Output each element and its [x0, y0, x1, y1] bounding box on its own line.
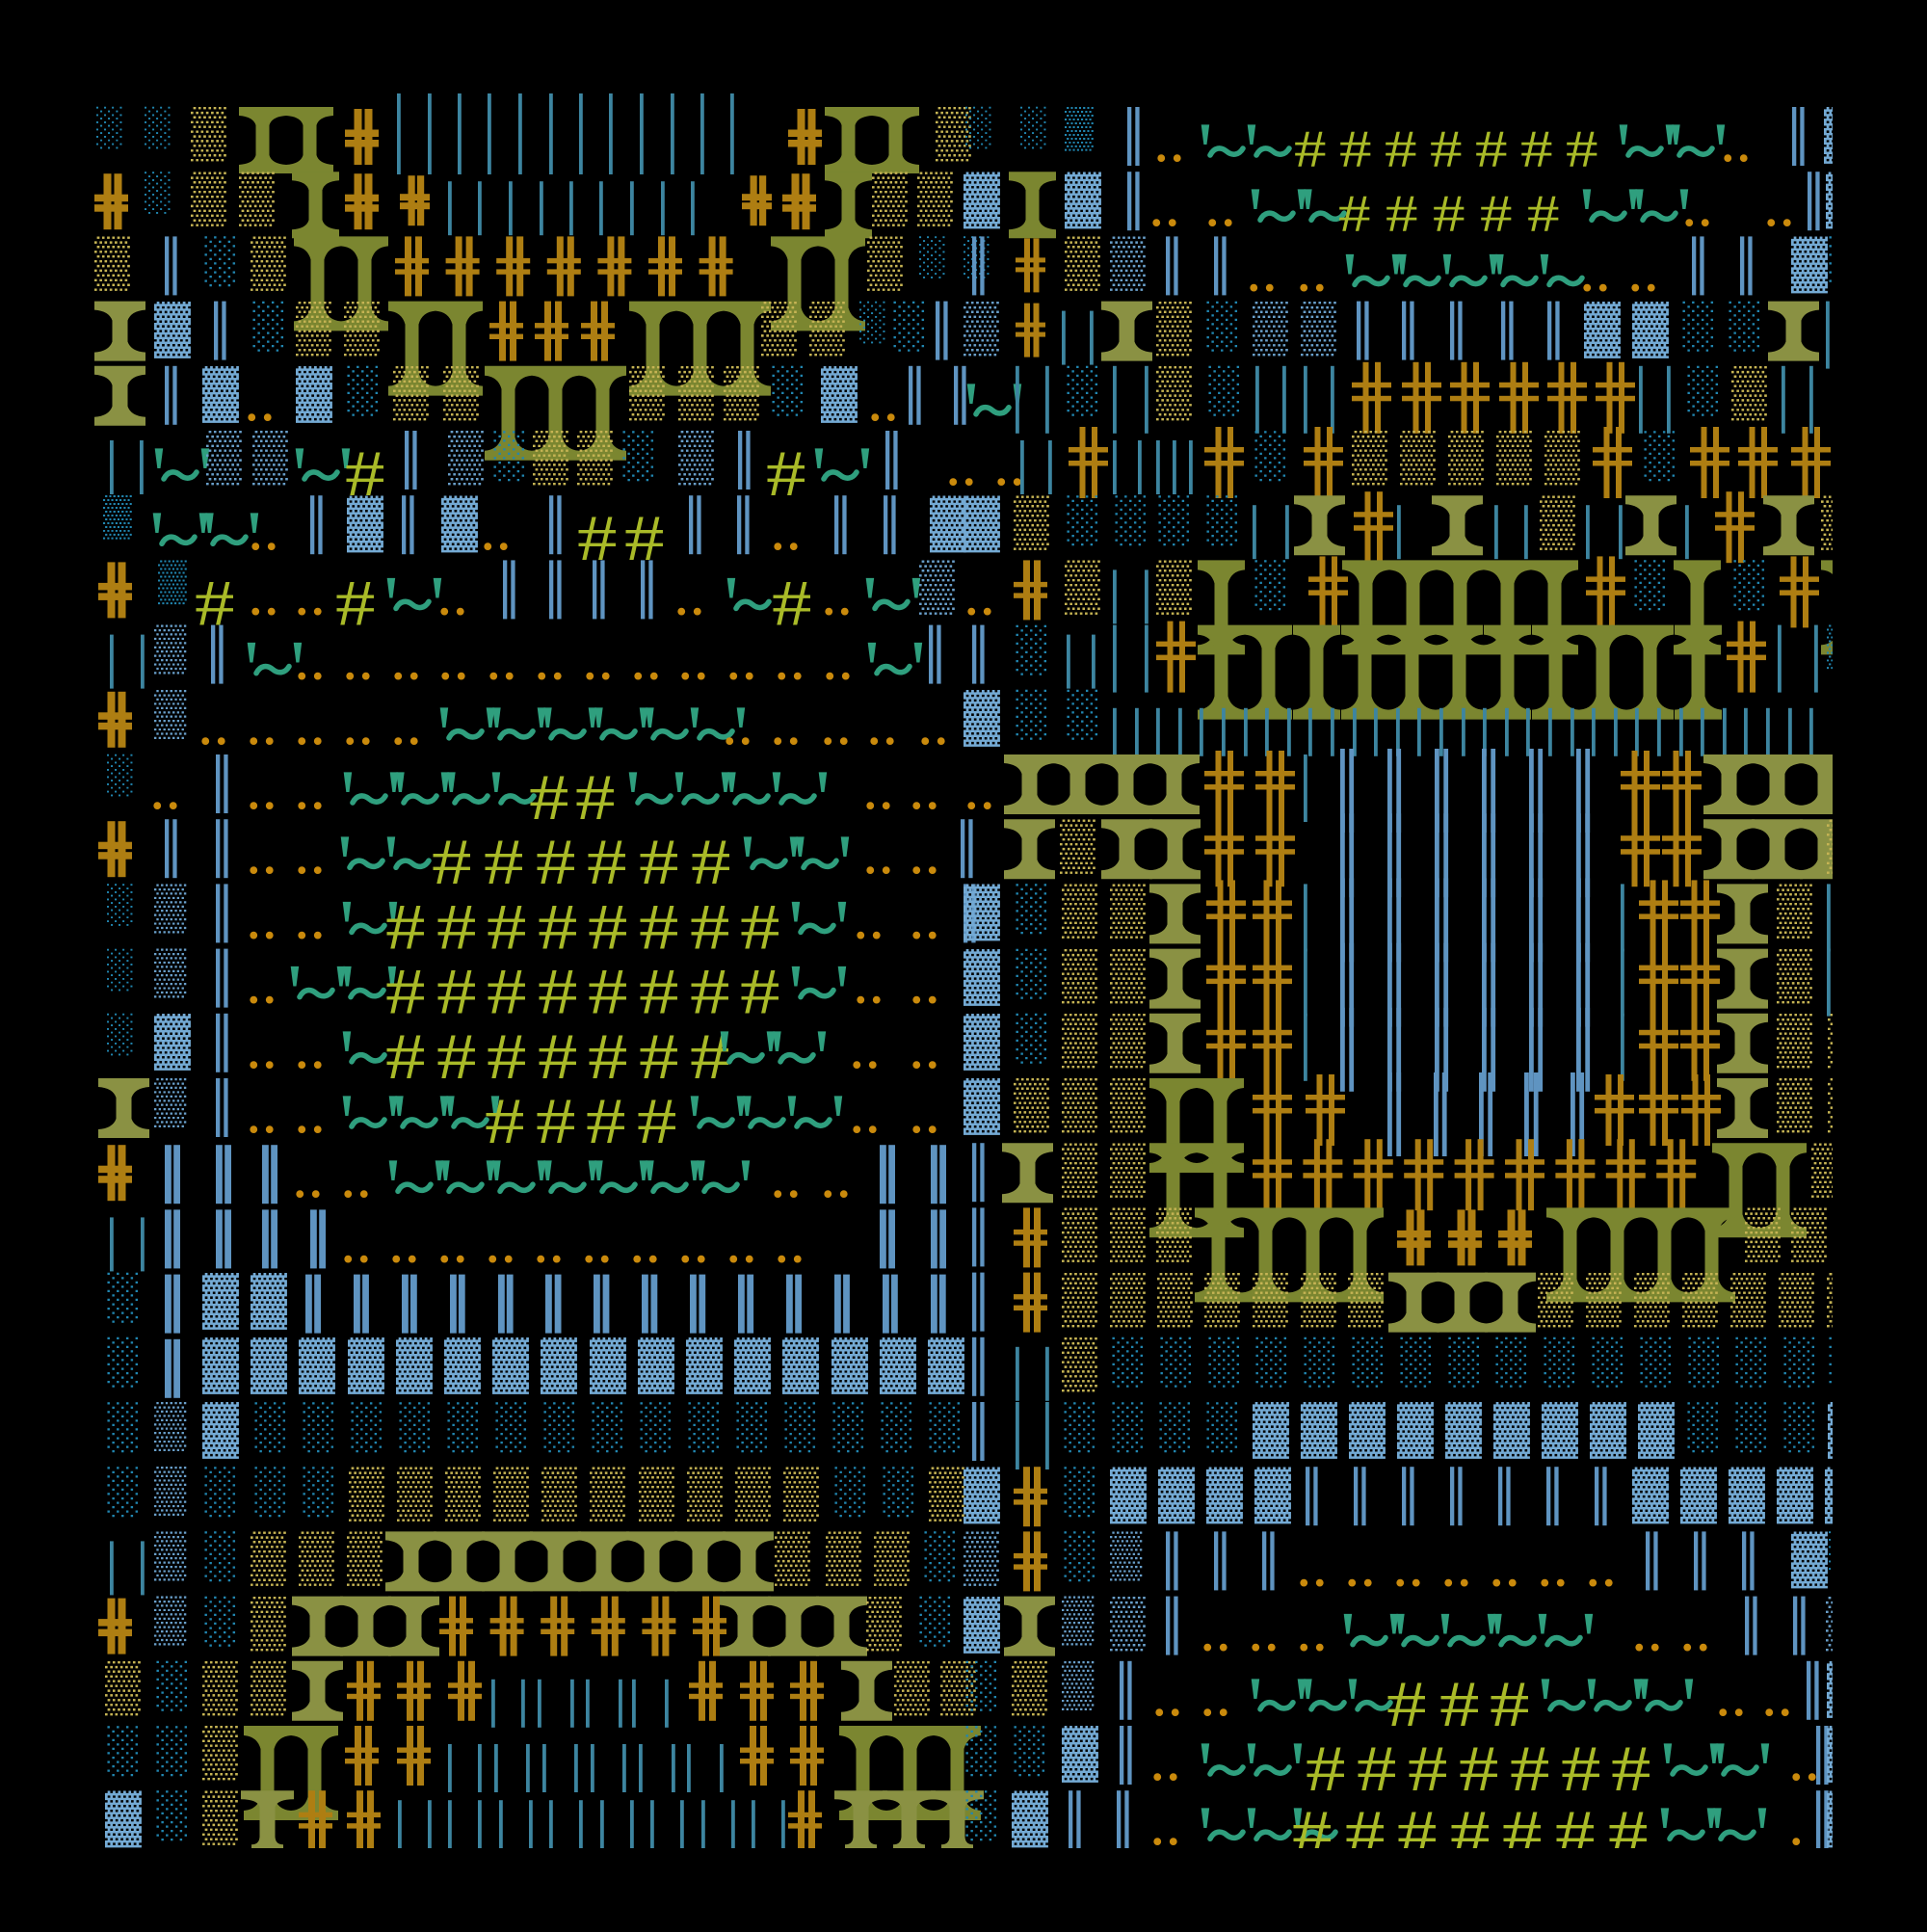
svg-text:▒: ▒ — [154, 1465, 187, 1516]
svg-text:..: .. — [726, 623, 757, 694]
svg-text:▓: ▓ — [202, 1271, 239, 1330]
svg-text:..: .. — [480, 493, 512, 564]
svg-text:#: # — [1510, 1733, 1549, 1805]
svg-text:░: ░ — [154, 1724, 188, 1777]
svg-text:..: .. — [533, 1205, 565, 1276]
svg-text:..: .. — [246, 688, 277, 758]
svg-text:..: .. — [1761, 1659, 1793, 1730]
svg-text:▒: ▒ — [1730, 1271, 1766, 1328]
svg-text:▓: ▓ — [963, 170, 1000, 228]
svg-text:▒: ▒ — [1110, 1595, 1146, 1652]
svg-text:▒: ▒ — [202, 1724, 238, 1781]
svg-text:▒: ▒ — [206, 429, 242, 486]
svg-text:..: .. — [1246, 234, 1278, 304]
svg-text:▒: ▒ — [1586, 1271, 1622, 1328]
svg-text:▒: ▒ — [344, 300, 380, 357]
svg-text:..: .. — [581, 1205, 613, 1276]
svg-text:▓: ▓ — [299, 1336, 335, 1394]
svg-text:▓: ▓ — [444, 1336, 481, 1394]
svg-text:░: ░ — [1110, 1400, 1144, 1453]
svg-text:▒: ▒ — [349, 1465, 384, 1522]
svg-text:..: .. — [909, 947, 940, 1018]
svg-text:#: # — [639, 956, 678, 1028]
svg-text:░: ░ — [397, 1400, 431, 1453]
svg-text:░: ░ — [491, 429, 525, 482]
svg-text:░: ░ — [105, 946, 133, 992]
svg-text:▒: ▒ — [1065, 559, 1100, 616]
svg-text:░: ░ — [1014, 622, 1047, 675]
svg-text:▓: ▓ — [963, 1012, 1000, 1071]
svg-text:..: .. — [246, 817, 277, 887]
svg-text:▒: ▒ — [1062, 883, 1097, 940]
svg-text:▒: ▒ — [894, 1659, 930, 1716]
svg-text:▒: ▒ — [154, 1076, 187, 1127]
svg-text:▒: ▒ — [1745, 1206, 1781, 1263]
svg-text:..: .. — [853, 947, 884, 1018]
svg-text:▓: ▓ — [1158, 1465, 1195, 1523]
svg-text:░: ░ — [345, 364, 379, 417]
svg-text:░: ░ — [1727, 299, 1760, 352]
svg-text:..: .. — [853, 882, 884, 952]
svg-text:#: # — [538, 1020, 577, 1093]
svg-text:▓: ▓ — [590, 1336, 626, 1394]
svg-text:#: # — [1520, 120, 1553, 179]
svg-text:░: ░ — [105, 1724, 139, 1777]
svg-text:░: ░ — [1206, 1336, 1240, 1389]
svg-text:..: .. — [294, 1076, 326, 1147]
svg-text:▒: ▒ — [1014, 493, 1049, 550]
svg-text:..: .. — [582, 623, 614, 694]
svg-text:▒: ▒ — [154, 947, 187, 998]
svg-text:░: ░ — [917, 1594, 951, 1647]
svg-text:#: # — [538, 956, 577, 1028]
svg-text:▒: ▒ — [639, 1465, 674, 1522]
svg-text:..: .. — [820, 1141, 852, 1211]
svg-text:#: # — [588, 956, 627, 1028]
svg-text:..: .. — [770, 688, 802, 758]
svg-text:▒: ▒ — [826, 1530, 861, 1587]
svg-text:▒: ▒ — [735, 1465, 771, 1522]
svg-text:▓: ▓ — [1397, 1400, 1434, 1459]
svg-text:..: .. — [867, 364, 899, 435]
svg-text:..: .. — [294, 882, 326, 952]
svg-text:..: .. — [1296, 1595, 1328, 1665]
svg-text:░: ░ — [1012, 1724, 1045, 1777]
svg-text:░: ░ — [1062, 1465, 1095, 1518]
svg-text:▒: ▒ — [917, 170, 953, 226]
svg-text:░: ░ — [493, 1400, 527, 1453]
svg-text:..: .. — [917, 688, 949, 758]
svg-text:░: ░ — [1590, 1336, 1623, 1389]
svg-text:▓: ▓ — [1012, 1788, 1048, 1847]
svg-text:..: .. — [1681, 170, 1713, 240]
svg-text:#: # — [1490, 1668, 1529, 1740]
svg-text:..: .. — [862, 817, 894, 887]
svg-text:▒: ▒ — [1157, 1271, 1193, 1328]
svg-text:..: .. — [909, 817, 940, 887]
svg-text:▒: ▒ — [1777, 1076, 1812, 1133]
svg-text:▒: ▒ — [1062, 1206, 1097, 1263]
svg-text:..: .. — [726, 1205, 757, 1276]
svg-text:▓: ▓ — [396, 1336, 433, 1394]
svg-text:▓: ▓ — [963, 1465, 1000, 1523]
svg-text:▓: ▓ — [963, 883, 1000, 941]
svg-text:#: # — [1430, 120, 1463, 179]
svg-text:▒: ▒ — [1110, 947, 1146, 1004]
svg-text:░: ░ — [1014, 688, 1047, 741]
svg-text:..: .. — [673, 558, 705, 628]
svg-text:..: .. — [1679, 1595, 1711, 1665]
svg-text:░: ░ — [1542, 1336, 1575, 1389]
svg-text:▓: ▓ — [202, 364, 239, 423]
svg-text:▒: ▒ — [724, 364, 759, 421]
svg-text:░: ░ — [1493, 1336, 1527, 1389]
svg-text:░: ░ — [1632, 558, 1666, 611]
svg-text:░: ░ — [1158, 1336, 1192, 1389]
svg-text:..: .. — [248, 493, 279, 564]
svg-text:░: ░ — [202, 1465, 236, 1518]
svg-text:..: .. — [1720, 105, 1752, 175]
svg-text:▒: ▒ — [963, 300, 999, 357]
svg-text:░: ░ — [963, 1724, 997, 1777]
svg-text:░: ░ — [1018, 104, 1046, 149]
svg-text:#: # — [385, 956, 425, 1028]
svg-text:▒: ▒ — [1777, 1012, 1812, 1069]
svg-text:░: ░ — [154, 1659, 188, 1712]
svg-text:▒: ▒ — [1156, 364, 1192, 421]
svg-text:▒: ▒ — [874, 1530, 910, 1587]
svg-text:▒: ▒ — [1634, 1271, 1670, 1328]
svg-text:░: ░ — [1204, 1400, 1238, 1453]
svg-text:#: # — [487, 890, 526, 963]
svg-text:░: ░ — [891, 299, 925, 352]
svg-text:░: ░ — [881, 1465, 914, 1518]
svg-text:▓: ▓ — [734, 1336, 771, 1394]
svg-text:..: .. — [294, 688, 326, 758]
svg-text:░: ░ — [1733, 1336, 1767, 1389]
svg-text:..: .. — [436, 558, 468, 628]
svg-text:▒: ▒ — [1352, 429, 1387, 486]
svg-text:..: .. — [294, 817, 326, 887]
svg-text:░: ░ — [686, 1400, 720, 1453]
svg-text:▒: ▒ — [202, 1788, 238, 1845]
svg-text:▓: ▓ — [1110, 1465, 1147, 1523]
svg-text:▒: ▒ — [1110, 883, 1146, 940]
svg-text:░: ░ — [301, 1465, 334, 1518]
svg-text:▓: ▓ — [1590, 1400, 1626, 1459]
svg-text:░: ░ — [105, 1270, 139, 1323]
svg-text:..: .. — [149, 753, 181, 823]
svg-text:▒: ▒ — [590, 1465, 625, 1522]
svg-text:▓: ▓ — [492, 1336, 529, 1394]
svg-text:..: .. — [677, 623, 709, 694]
svg-text:..: .. — [963, 753, 995, 823]
svg-text:▓: ▓ — [782, 1336, 819, 1394]
svg-text:▒: ▒ — [1301, 300, 1336, 357]
svg-text:▒: ▒ — [1156, 1206, 1192, 1263]
svg-text:▒: ▒ — [1062, 1076, 1097, 1133]
svg-text:..: .. — [534, 623, 566, 694]
svg-text:▒: ▒ — [963, 1530, 999, 1587]
svg-text:▓: ▓ — [1680, 1465, 1717, 1523]
svg-text:░: ░ — [858, 299, 885, 344]
svg-text:▒: ▒ — [1540, 493, 1575, 550]
svg-text:░: ░ — [301, 1400, 334, 1453]
svg-text:▒: ▒ — [251, 1595, 286, 1652]
svg-text:▓: ▓ — [1638, 1400, 1675, 1459]
svg-text:#: # — [1386, 1668, 1426, 1740]
svg-text:░: ░ — [734, 1400, 768, 1453]
svg-text:▒: ▒ — [1682, 1271, 1718, 1328]
svg-text:..: .. — [909, 1012, 940, 1082]
svg-text:░: ░ — [105, 882, 133, 927]
svg-text:▒: ▒ — [1062, 1336, 1097, 1392]
svg-text:░: ░ — [1680, 299, 1714, 352]
svg-text:..: .. — [1537, 1529, 1569, 1600]
svg-text:▒: ▒ — [919, 559, 955, 616]
svg-text:..: .. — [770, 1141, 802, 1211]
svg-text:░: ░ — [1014, 1012, 1047, 1065]
svg-text:▓: ▓ — [1542, 1400, 1578, 1459]
svg-text:▓: ▓ — [963, 1595, 1000, 1654]
svg-text:▒: ▒ — [1496, 429, 1532, 486]
svg-text:░: ░ — [1065, 688, 1098, 741]
svg-text:▒: ▒ — [1400, 429, 1436, 486]
svg-text:▒: ▒ — [1791, 1206, 1827, 1263]
svg-text:..: .. — [909, 882, 940, 952]
svg-text:..: .. — [340, 1205, 372, 1276]
svg-text:░: ░ — [1731, 558, 1765, 611]
svg-text:#: # — [588, 1020, 627, 1093]
svg-text:▒: ▒ — [154, 882, 187, 933]
svg-text:▒: ▒ — [1156, 300, 1192, 357]
svg-text:▒: ▒ — [1348, 1271, 1384, 1328]
svg-text:▒: ▒ — [533, 429, 568, 486]
svg-text:░: ░ — [105, 1400, 139, 1453]
svg-text:..: .. — [248, 558, 279, 628]
svg-text:▓: ▓ — [930, 493, 966, 552]
svg-text:#: # — [1459, 1733, 1498, 1805]
svg-text:..: .. — [246, 947, 277, 1018]
svg-text:..: .. — [294, 1012, 326, 1082]
svg-text:▓: ▓ — [296, 364, 332, 423]
svg-text:░: ░ — [1156, 493, 1190, 546]
svg-text:▓: ▓ — [963, 493, 1000, 552]
svg-text:#: # — [1339, 120, 1372, 179]
svg-text:..: .. — [1151, 1659, 1183, 1730]
svg-text:▒: ▒ — [1538, 1271, 1573, 1328]
svg-text:░: ░ — [1204, 493, 1238, 546]
svg-text:▓: ▓ — [963, 1076, 1000, 1135]
svg-text:#: # — [690, 890, 729, 963]
svg-text:░: ░ — [1065, 493, 1098, 546]
svg-text:..: .. — [677, 1205, 709, 1276]
svg-text:': ' — [815, 754, 831, 847]
svg-text:░: ░ — [105, 1465, 139, 1518]
svg-text:▓: ▓ — [1632, 1465, 1669, 1523]
svg-text:░: ░ — [1014, 946, 1047, 999]
svg-text:..: .. — [1344, 1529, 1376, 1600]
svg-text:▒: ▒ — [1110, 1076, 1146, 1133]
svg-text:#: # — [484, 826, 523, 898]
svg-text:▓: ▓ — [832, 1336, 868, 1394]
svg-text:..: .. — [1788, 1724, 1820, 1794]
svg-text:▓: ▓ — [1301, 1400, 1337, 1459]
svg-text:▓: ▓ — [1729, 1465, 1765, 1523]
svg-text:▒: ▒ — [202, 1659, 238, 1716]
svg-text:░: ░ — [1782, 1400, 1815, 1453]
svg-text:▒: ▒ — [1110, 1271, 1146, 1328]
svg-text:..: .. — [1489, 1529, 1520, 1600]
svg-text:░: ░ — [154, 1788, 188, 1841]
svg-text:#: # — [1385, 120, 1417, 179]
svg-text:#: # — [1408, 1733, 1447, 1805]
svg-text:▒: ▒ — [251, 235, 286, 292]
svg-text:░: ░ — [620, 429, 654, 482]
svg-text:..: .. — [292, 1141, 324, 1211]
svg-text:░: ░ — [963, 104, 991, 149]
svg-text:▒: ▒ — [1065, 235, 1100, 292]
svg-text:▓: ▓ — [154, 1012, 191, 1071]
svg-text:░: ░ — [105, 1011, 133, 1056]
svg-text:░: ░ — [963, 1659, 997, 1712]
svg-text:▒: ▒ — [191, 105, 226, 162]
svg-text:▓: ▓ — [1791, 235, 1828, 294]
svg-text:▓: ▓ — [441, 493, 478, 552]
svg-text:░: ░ — [1302, 1336, 1335, 1389]
svg-text:▒: ▒ — [239, 170, 275, 226]
svg-text:▒: ▒ — [1110, 1012, 1146, 1069]
svg-text:▒: ▒ — [154, 1529, 187, 1580]
svg-text:▒: ▒ — [1062, 1271, 1097, 1328]
svg-text:#: # — [587, 826, 626, 898]
svg-text:▒: ▒ — [1110, 1206, 1146, 1263]
svg-text:#: # — [432, 826, 471, 898]
svg-text:▓: ▓ — [1349, 1400, 1386, 1459]
svg-text:░: ░ — [782, 1400, 816, 1453]
svg-text:▒: ▒ — [1065, 106, 1094, 151]
svg-text:▓: ▓ — [1584, 300, 1621, 358]
svg-text:▒: ▒ — [929, 1465, 964, 1522]
svg-text:▒: ▒ — [158, 559, 187, 604]
svg-text:▓: ▓ — [686, 1336, 723, 1394]
svg-text:..: .. — [849, 1076, 881, 1147]
svg-text:░: ░ — [1350, 1336, 1384, 1389]
svg-text:': ' — [858, 430, 873, 523]
svg-text:░: ░ — [879, 1400, 912, 1453]
svg-text:..: .. — [246, 753, 277, 823]
svg-text:..: .. — [1296, 1529, 1328, 1600]
svg-text:▒: ▒ — [347, 1530, 383, 1587]
svg-text:#: # — [588, 890, 627, 963]
svg-text:░: ░ — [445, 1400, 479, 1453]
svg-text:..: .. — [246, 1012, 277, 1082]
svg-text:..: .. — [821, 558, 853, 628]
svg-text:..: .. — [1392, 1529, 1424, 1600]
svg-text:..: .. — [1200, 1595, 1231, 1665]
svg-text:..: .. — [1200, 1659, 1231, 1730]
svg-text:..: .. — [1440, 1529, 1472, 1600]
svg-text:▒: ▒ — [687, 1465, 723, 1522]
svg-text:..: .. — [1763, 170, 1795, 240]
svg-text:..: .. — [294, 558, 326, 628]
svg-text:▓: ▓ — [1065, 170, 1101, 228]
svg-text:▒: ▒ — [299, 1530, 334, 1587]
svg-text:▒: ▒ — [1062, 1141, 1097, 1198]
svg-text:▒: ▒ — [678, 364, 714, 421]
svg-text:░: ░ — [202, 234, 236, 287]
svg-text:..: .. — [630, 623, 662, 694]
svg-text:▒: ▒ — [1731, 364, 1767, 421]
svg-text:..: .. — [1153, 105, 1185, 175]
svg-text:..: .. — [246, 882, 277, 952]
svg-text:#: # — [740, 890, 779, 963]
svg-text:▒: ▒ — [872, 170, 908, 226]
svg-text:#: # — [639, 826, 678, 898]
svg-text:#: # — [1439, 1668, 1479, 1740]
svg-text:▓: ▓ — [202, 1336, 239, 1394]
svg-text:▒: ▒ — [1253, 1271, 1288, 1328]
svg-text:..: .. — [866, 688, 898, 758]
svg-text:..: .. — [244, 364, 276, 435]
svg-text:░: ░ — [1206, 364, 1240, 417]
svg-text:#: # — [538, 890, 577, 963]
svg-text:▓: ▓ — [1206, 1465, 1243, 1523]
svg-text:░: ░ — [1733, 1400, 1767, 1453]
svg-text:..: .. — [774, 1205, 805, 1276]
svg-text:░: ░ — [105, 752, 133, 797]
svg-text:▒: ▒ — [397, 1465, 433, 1522]
svg-text:▓: ▓ — [347, 493, 383, 552]
svg-text:▒: ▒ — [296, 300, 331, 357]
svg-text:░: ░ — [1253, 429, 1286, 482]
svg-text:▒: ▒ — [1544, 429, 1580, 486]
svg-text:..: .. — [1715, 1659, 1747, 1730]
svg-text:..: .. — [436, 1205, 468, 1276]
svg-text:#: # — [639, 890, 678, 963]
svg-text:▓: ▓ — [1493, 1400, 1530, 1459]
svg-text:▒: ▒ — [1777, 883, 1812, 940]
svg-text:..: .. — [1148, 170, 1180, 240]
svg-text:▒: ▒ — [577, 429, 613, 486]
svg-text:░: ░ — [1782, 1336, 1815, 1389]
svg-text:▓: ▓ — [638, 1336, 674, 1394]
svg-text:▒: ▒ — [1110, 235, 1146, 292]
svg-text:░: ░ — [917, 234, 945, 279]
svg-text:▒: ▒ — [251, 1659, 286, 1716]
svg-text:#: # — [1357, 1733, 1396, 1805]
svg-text:..: .. — [390, 688, 422, 758]
svg-text:░: ░ — [1685, 1400, 1719, 1453]
svg-text:▒: ▒ — [1301, 1271, 1336, 1328]
svg-text:▒: ▒ — [1062, 1595, 1095, 1646]
svg-text:..: .. — [340, 1141, 372, 1211]
svg-text:..: .. — [862, 753, 894, 823]
svg-text:▒: ▒ — [867, 235, 903, 292]
svg-text:▒: ▒ — [252, 429, 288, 486]
svg-text:▒: ▒ — [105, 1659, 141, 1716]
svg-text:': ' — [814, 1013, 830, 1106]
svg-text:░: ░ — [1065, 364, 1098, 417]
svg-text:': ' — [1681, 1660, 1697, 1754]
svg-text:..: .. — [1627, 234, 1659, 304]
svg-text:#: # — [536, 826, 575, 898]
svg-text:#: # — [575, 761, 615, 834]
svg-text:▒: ▒ — [493, 1465, 529, 1522]
svg-text:▒: ▒ — [154, 1400, 187, 1451]
svg-text:░: ░ — [1062, 1400, 1095, 1453]
svg-text:░: ░ — [202, 1594, 236, 1647]
